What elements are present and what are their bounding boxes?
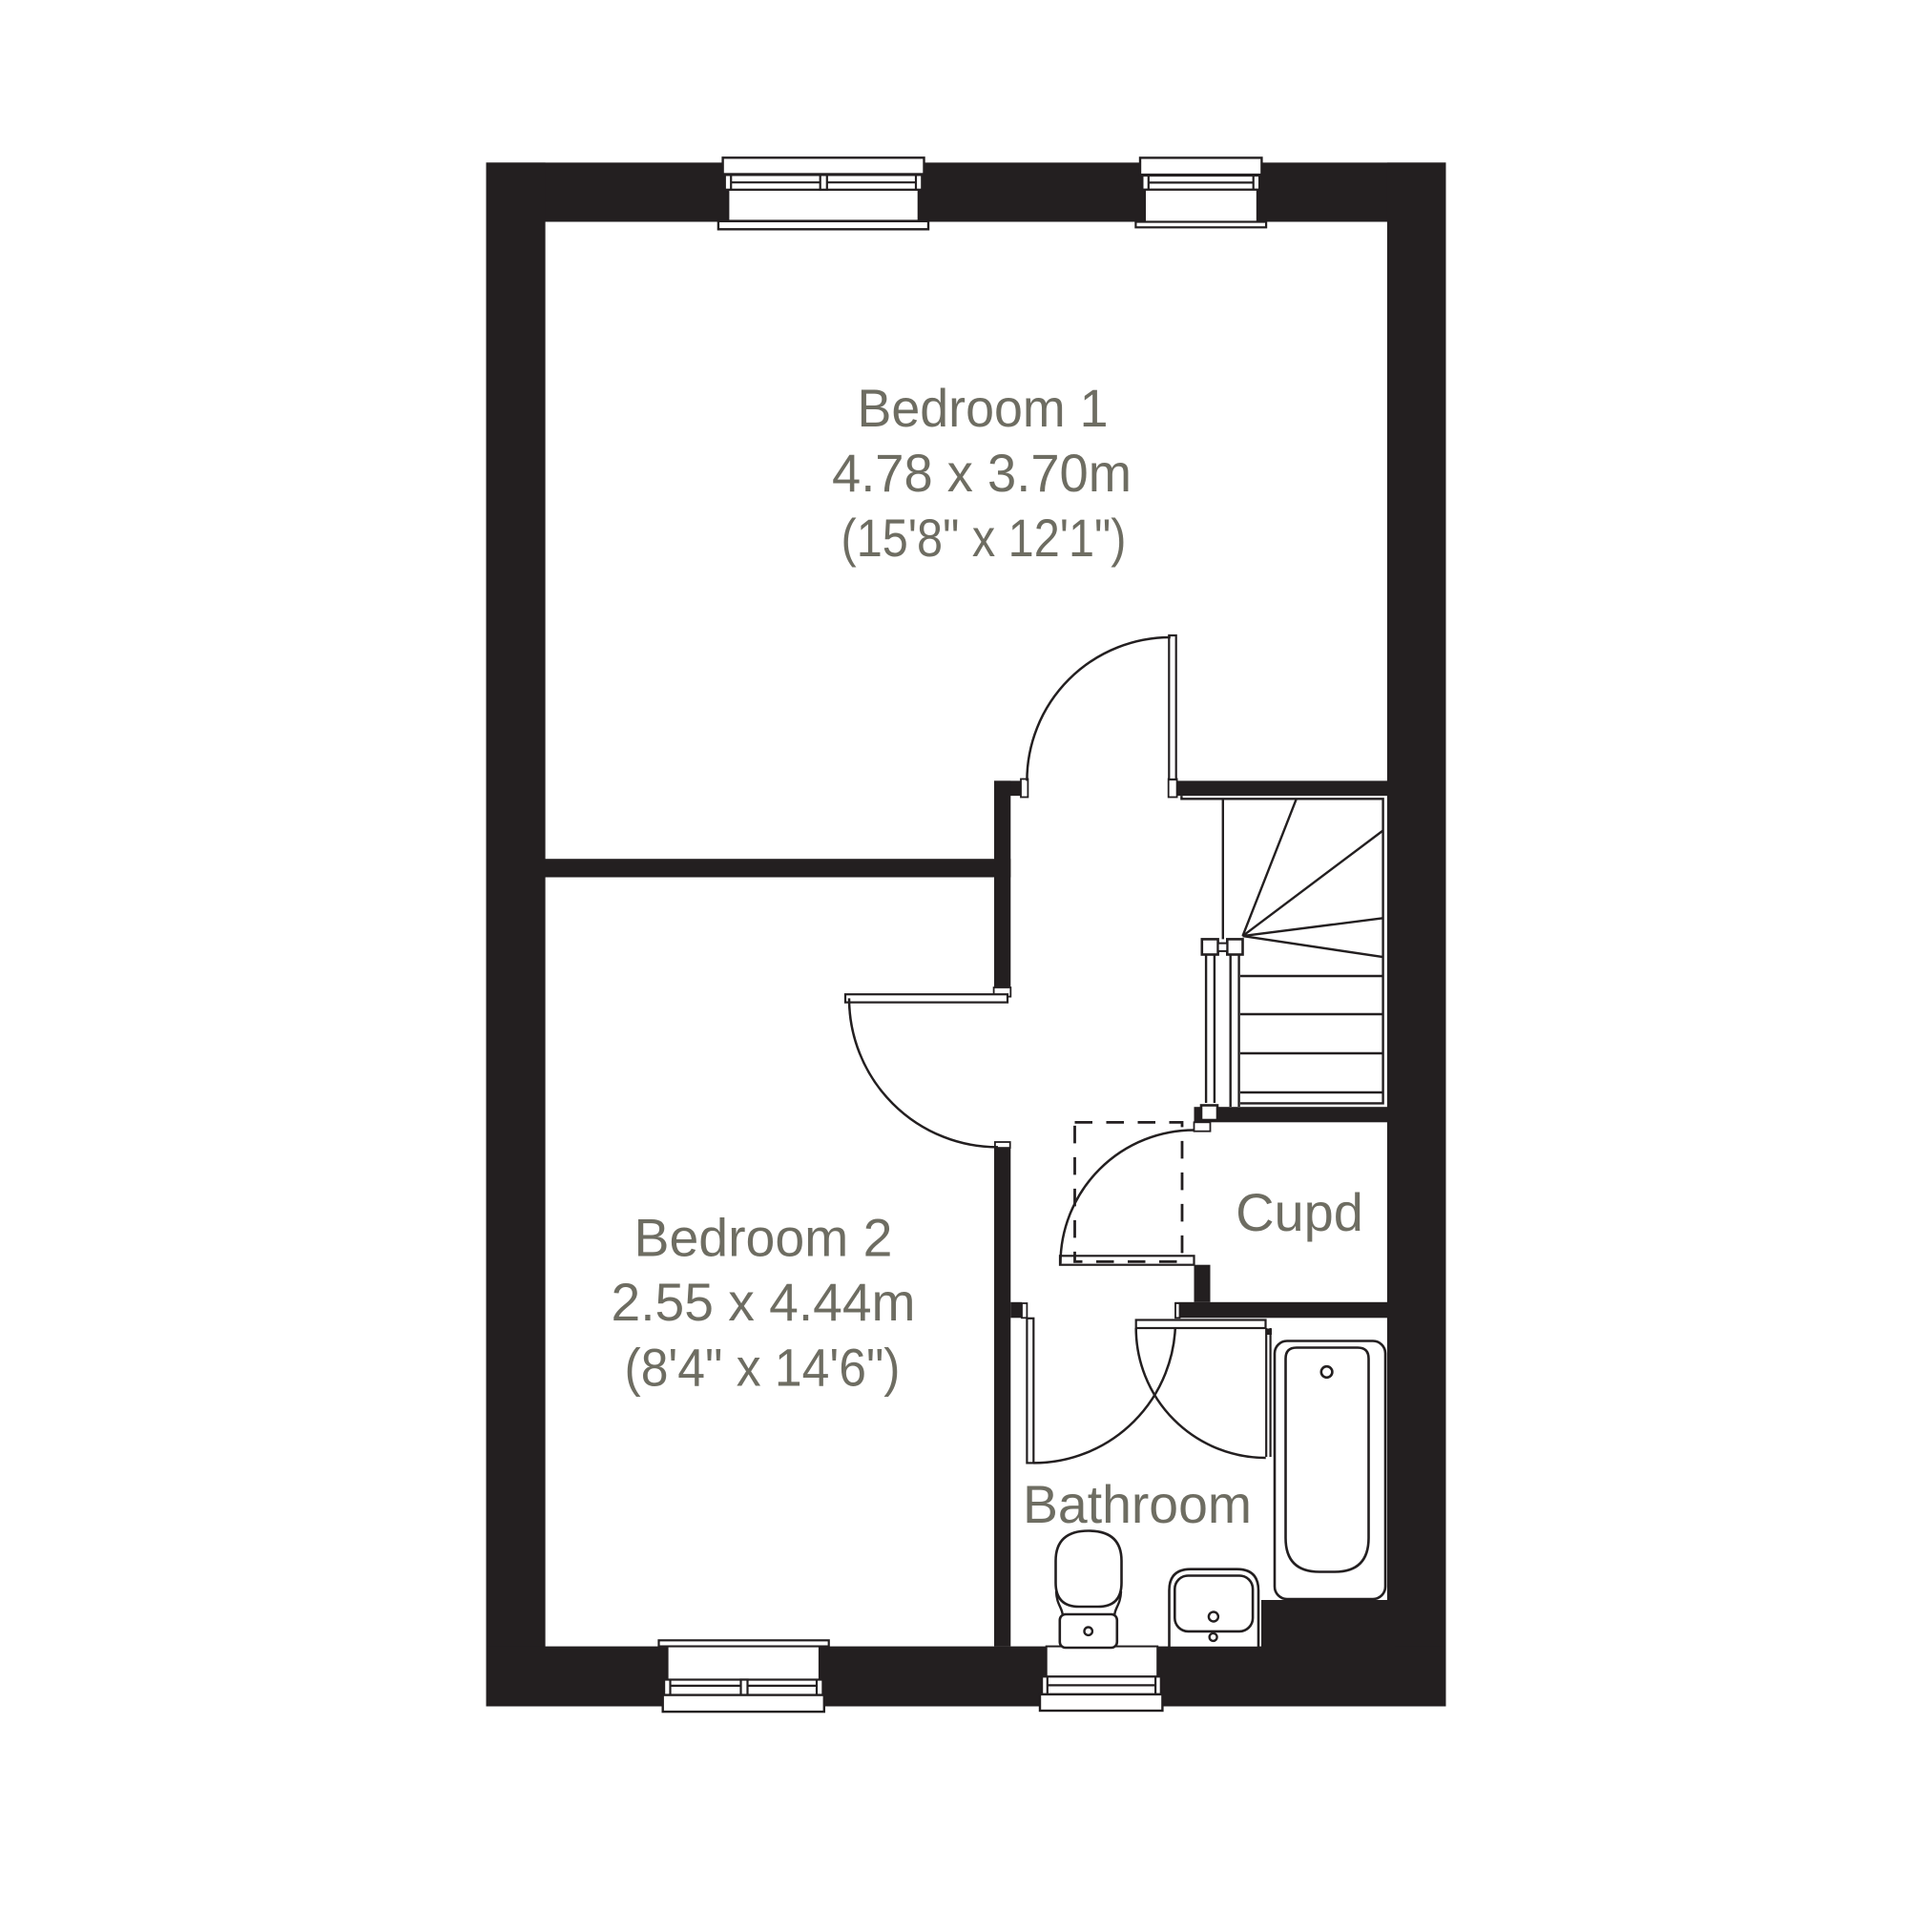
svg-text:2.55 x 4.44m: 2.55 x 4.44m <box>612 1272 916 1332</box>
svg-text:Cupd: Cupd <box>1236 1182 1363 1242</box>
svg-text:(8'4" x 14'6"): (8'4" x 14'6") <box>625 1338 901 1398</box>
svg-text:Bathroom: Bathroom <box>1023 1474 1252 1534</box>
svg-text:(15'8" x 12'1"): (15'8" x 12'1") <box>841 508 1127 568</box>
svg-text:Bedroom 1: Bedroom 1 <box>858 378 1109 438</box>
svg-text:4.78 x 3.70m: 4.78 x 3.70m <box>832 443 1132 503</box>
svg-text:Bedroom 2: Bedroom 2 <box>634 1208 893 1268</box>
